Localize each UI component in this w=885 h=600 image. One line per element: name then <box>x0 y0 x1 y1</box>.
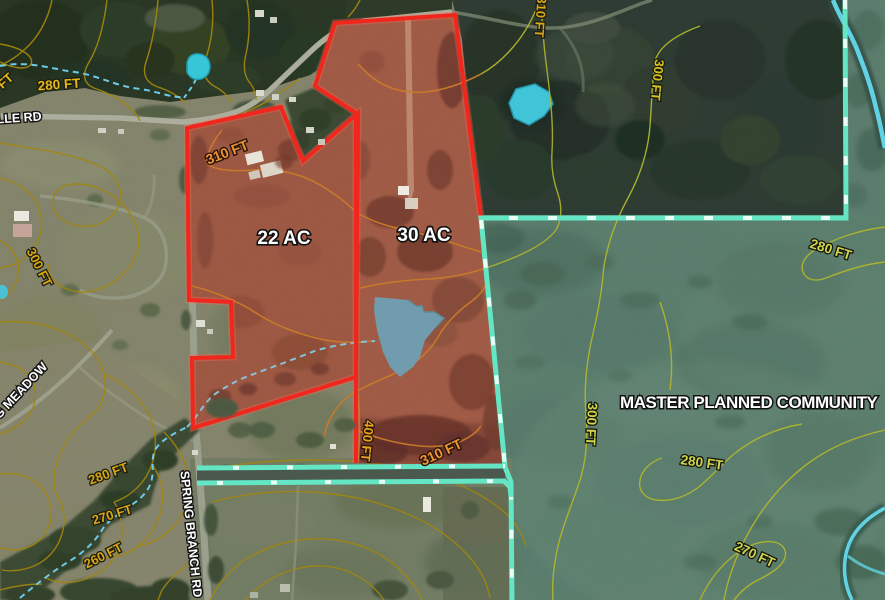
svg-text:MASTER PLANNED COMMUNITY: MASTER PLANNED COMMUNITY <box>620 393 879 412</box>
svg-text:30 AC: 30 AC <box>397 225 450 246</box>
svg-text:310 FT: 310 FT <box>532 0 550 38</box>
svg-text:22 AC: 22 AC <box>257 228 310 249</box>
svg-text:300 FT: 300 FT <box>583 402 600 446</box>
svg-text:280 FT: 280 FT <box>37 75 81 93</box>
